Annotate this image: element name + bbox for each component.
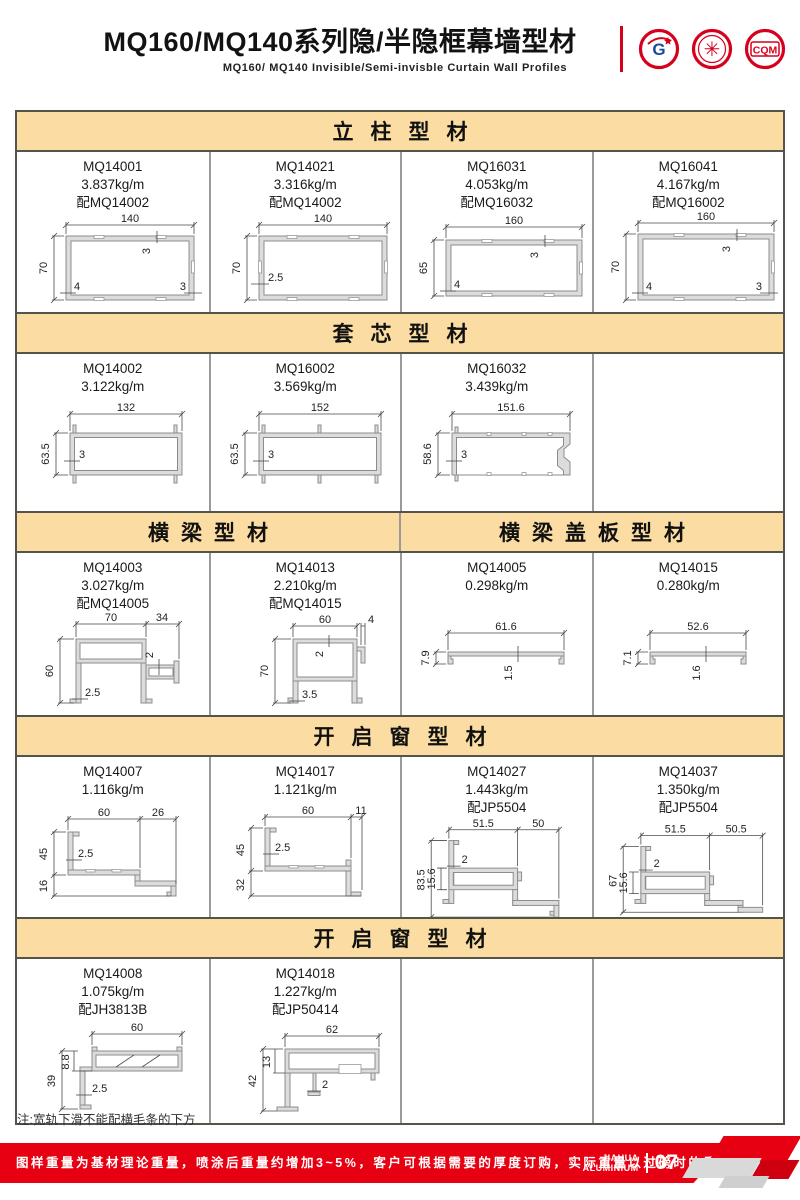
dim-label: 39: [46, 1075, 58, 1087]
profile-match: 配MQ14005: [17, 595, 209, 613]
svg-text:G: G: [652, 40, 665, 59]
dim-label: 63.5: [229, 443, 241, 464]
profile-weight: 3.027kg/m: [17, 577, 209, 595]
footer-brand: JIAHUA ALUMINIUM 07: [583, 1143, 678, 1183]
brand-line-2: ALUMINIUM: [583, 1163, 639, 1173]
dim-label: 50.5: [725, 824, 746, 836]
dim-label: 132: [117, 402, 135, 414]
dim-label: 60: [301, 805, 313, 817]
profile-cell-mq14005: MQ14005 0.298kg/m 61.6 7.9 1.5: [400, 553, 592, 715]
certification-logos: G ✳ CQM: [620, 26, 786, 72]
profile-label: MQ16032 3.439kg/m: [402, 360, 592, 396]
dim-label: 34: [156, 613, 168, 624]
section-band-beam: 横梁型材: [17, 513, 399, 551]
section-title: 套芯型材: [316, 318, 485, 348]
profile-code: MQ14013: [211, 559, 401, 577]
dim-label: 70: [38, 262, 50, 274]
profile-drawing-mq14002: 132 63.5 3: [18, 397, 208, 497]
dim-label: 45: [235, 844, 247, 856]
profile-weight: 1.227kg/m: [211, 983, 401, 1001]
page-title: MQ160/MQ140系列隐/半隐框幕墙型材: [40, 20, 640, 59]
brand-separator: [646, 1153, 648, 1173]
dim-label: 2.5: [92, 1083, 107, 1095]
profile-match: 配MQ16002: [594, 194, 784, 212]
brand-name: JIAHUA ALUMINIUM: [583, 1153, 639, 1174]
profile-match: 配JH3813B: [17, 1001, 209, 1019]
gb-certification-logo-icon: G: [638, 28, 680, 70]
empty-cell: [400, 959, 592, 1123]
profile-code: MQ16031: [402, 158, 592, 176]
dim-label: 15.6: [426, 869, 438, 890]
dim-label: 2: [322, 1079, 328, 1091]
profile-weight: 4.167kg/m: [594, 176, 784, 194]
dim-label: 7.9: [420, 650, 432, 665]
profile-cell-mq14003: MQ14003 3.027kg/m 配MQ14005 70 34 60: [17, 553, 209, 715]
quality-emblem-logo-icon: ✳: [691, 28, 733, 70]
dim-label: 15.6: [618, 873, 630, 894]
dim-label: 63.5: [40, 443, 52, 464]
profile-cell-mq14018: MQ14018 1.227kg/m 配JP50414 62 42 13: [209, 959, 401, 1123]
page-header: MQ160/MQ140系列隐/半隐框幕墙型材 MQ160/ MQ140 Invi…: [40, 20, 640, 74]
profile-code: MQ14027: [402, 763, 592, 781]
profile-drawing-mq14003: 70 34 60 2.5 2: [18, 613, 208, 711]
profile-label: MQ14015 0.280kg/m: [594, 559, 784, 595]
dim-label: 51.5: [473, 818, 494, 830]
dim-label: 51.5: [664, 824, 685, 836]
profile-match: 配JP5504: [402, 799, 592, 817]
profile-drawing-mq14037: 51.5 50.5 67 15.6 2: [594, 817, 784, 917]
logo-divider: [620, 26, 623, 72]
svg-text:✳: ✳: [704, 37, 721, 61]
section-band-columns: 立柱型材: [17, 112, 783, 152]
dim-label: 3: [268, 449, 274, 461]
profile-label: MQ14021 3.316kg/m 配MQ14002: [211, 158, 401, 211]
dim-label: 2: [462, 855, 468, 867]
profile-drawing-mq14015: 52.6 7.1 1.6: [594, 596, 784, 694]
dim-label: 70: [610, 261, 622, 273]
profile-cell-mq14037: MQ14037 1.350kg/m 配JP5504 51.5 5: [592, 757, 784, 917]
dim-label: 52.6: [687, 621, 708, 633]
profile-match: 配MQ14002: [211, 194, 401, 212]
dim-label: 7.1: [622, 650, 634, 665]
profile-drawing-mq14005: 61.6 7.9 1.5: [402, 596, 592, 694]
profile-catalog-table: 立柱型材 MQ14001 3.837kg/m 配MQ14002 140 70: [15, 110, 785, 1125]
dim-label: 2.5: [85, 687, 100, 699]
footer-bar: 图样重量为基材理论重量，喷涂后重量约增加3~5%，客户可根据需要的厚度订购，实际…: [0, 1143, 730, 1183]
profile-drawing-mq16002: 152 63.5 3: [211, 397, 401, 497]
dim-label: 3: [529, 252, 541, 258]
dim-label: 160: [696, 212, 714, 223]
dim-label: 26: [152, 807, 164, 819]
section-band-vents-2: 开启窗型材: [17, 917, 783, 959]
dim-label: 140: [313, 213, 331, 225]
dim-label: 2.5: [275, 842, 290, 854]
dim-label: 3: [141, 248, 153, 254]
dim-label: 3: [79, 449, 85, 461]
profile-code: MQ14037: [594, 763, 784, 781]
profile-label: MQ14018 1.227kg/m 配JP50414: [211, 965, 401, 1018]
dim-label: 4: [454, 279, 460, 291]
dim-label: 3: [721, 246, 733, 252]
profile-code: MQ14003: [17, 559, 209, 577]
dim-label: 45: [38, 848, 50, 860]
profile-weight: 1.075kg/m: [17, 983, 209, 1001]
profile-weight: 1.350kg/m: [594, 781, 784, 799]
svg-text:CQM: CQM: [753, 45, 778, 57]
profile-match: 配JP50414: [211, 1001, 401, 1019]
section-title: 立柱型材: [316, 116, 485, 146]
section-title: 横梁型材: [136, 517, 280, 547]
profile-code: MQ14008: [17, 965, 209, 983]
profile-code: MQ16002: [211, 360, 401, 378]
section-row: MQ14001 3.837kg/m 配MQ14002 140 70 3: [17, 152, 783, 312]
dim-label: 58.6: [422, 443, 434, 464]
dim-label: 151.6: [497, 402, 525, 414]
profile-label: MQ14037 1.350kg/m 配JP5504: [594, 763, 784, 816]
decor-parallelogram-gray-small: [719, 1176, 770, 1188]
profile-weight: 3.439kg/m: [402, 378, 592, 396]
profile-weight: 3.569kg/m: [211, 378, 401, 396]
profile-cell-mq14013: MQ14013 2.210kg/m 配MQ14015 60 4 70: [209, 553, 401, 715]
profile-label: MQ14001 3.837kg/m 配MQ14002: [17, 158, 209, 211]
profile-weight: 1.443kg/m: [402, 781, 592, 799]
section-band-beam-cover: 横梁盖板型材: [399, 513, 783, 551]
profile-cell-mq14027: MQ14027 1.443kg/m 配JP5504 51.5 50: [400, 757, 592, 917]
profile-cell-mq16032: MQ16032 3.439kg/m 151.6 58.6 3: [400, 354, 592, 511]
cqm-certification-logo-icon: CQM: [744, 28, 786, 70]
profile-label: MQ14002 3.122kg/m: [17, 360, 209, 396]
section-title: 开启窗型材: [297, 721, 504, 751]
page-number: 07: [655, 1151, 678, 1175]
section-band-cores: 套芯型材: [17, 312, 783, 354]
profile-cell-mq14002: MQ14002 3.122kg/m 132 63.5 3: [17, 354, 209, 511]
profile-match: 配MQ16032: [402, 194, 592, 212]
dim-label: 2: [144, 652, 156, 658]
profile-cell-mq14007: MQ14007 1.116kg/m 60 26 45: [17, 757, 209, 917]
profile-weight: 4.053kg/m: [402, 176, 592, 194]
empty-cell: [592, 354, 784, 511]
profile-drawing-mq14027: 51.5 50 83.5 15.6 2: [402, 817, 592, 917]
profile-drawing-mq14013: 60 4 70 2 3.5: [211, 613, 401, 711]
profile-code: MQ16032: [402, 360, 592, 378]
profile-weight: 3.122kg/m: [17, 378, 209, 396]
dim-label: 3: [461, 449, 467, 461]
section-band-beams: 横梁型材 横梁盖板型材: [17, 511, 783, 553]
profile-code: MQ14007: [17, 763, 209, 781]
dim-label: 1.6: [691, 665, 703, 680]
profile-cell-mq14015: MQ14015 0.280kg/m 52.6 7.1 1.6: [592, 553, 784, 715]
profile-weight: 1.116kg/m: [17, 781, 209, 799]
profile-cell-mq16002: MQ16002 3.569kg/m 152 63.5 3: [209, 354, 401, 511]
profile-match: 配MQ14015: [211, 595, 401, 613]
profile-label: MQ16031 4.053kg/m 配MQ16032: [402, 158, 592, 211]
dim-label: 42: [247, 1075, 259, 1087]
dim-label: 11: [355, 805, 366, 817]
empty-cell: [592, 959, 784, 1123]
dim-label: 3: [180, 281, 186, 293]
profile-code: MQ14017: [211, 763, 401, 781]
dim-label: 70: [231, 262, 243, 274]
profile-drawing-mq14001: 140 70 3 4 3: [18, 212, 208, 310]
brand-line-1: JIAHUA: [583, 1153, 639, 1163]
decor-parallelogram-gray: [682, 1158, 762, 1178]
profile-label: MQ14017 1.121kg/m: [211, 763, 401, 799]
profile-label: MQ14005 0.298kg/m: [402, 559, 592, 595]
dim-label: 60: [318, 614, 330, 626]
profile-cell-mq14008: MQ14008 1.075kg/m 配JH3813B 60 39 8.8: [17, 959, 209, 1123]
dim-label: 70: [259, 665, 271, 677]
catalog-page: MQ160/MQ140系列隐/半隐框幕墙型材 MQ160/ MQ140 Invi…: [0, 0, 800, 1200]
profile-drawing-mq14018: 62 42 13 2: [211, 1019, 401, 1119]
profile-drawing-mq14017: 60 11 45 32 2.5: [211, 800, 401, 912]
dim-label: 61.6: [495, 621, 516, 633]
profile-match: 配JP5504: [594, 799, 784, 817]
profile-cell-mq14001: MQ14001 3.837kg/m 配MQ14002 140 70 3: [17, 152, 209, 312]
dim-label: 60: [44, 665, 56, 677]
footnote: 注:宽轨下滑不能配横毛条的下方: [17, 1109, 195, 1128]
section-row: MQ14008 1.075kg/m 配JH3813B 60 39 8.8: [17, 959, 783, 1123]
dim-label: 4: [646, 281, 652, 293]
dim-label: 60: [131, 1022, 143, 1034]
profile-drawing-mq16041: 160 70 3 4 3: [594, 212, 784, 310]
dim-label: 60: [98, 807, 110, 819]
profile-drawing-mq14008: 60 39 8.8 2.5: [18, 1019, 208, 1119]
profile-label: MQ14027 1.443kg/m 配JP5504: [402, 763, 592, 816]
profile-label: MQ14007 1.116kg/m: [17, 763, 209, 799]
dim-label: 2: [314, 651, 326, 657]
dim-label: 65: [418, 262, 430, 274]
profile-weight: 3.316kg/m: [211, 176, 401, 194]
profile-code: MQ14021: [211, 158, 401, 176]
profile-code: MQ14002: [17, 360, 209, 378]
profile-cell-mq16031: MQ16031 4.053kg/m 配MQ16032 160 65 3: [400, 152, 592, 312]
profile-code: MQ14015: [594, 559, 784, 577]
profile-label: MQ16002 3.569kg/m: [211, 360, 401, 396]
section-band-vents-1: 开启窗型材: [17, 715, 783, 757]
profile-drawing-mq16031: 160 65 3 4: [402, 212, 592, 310]
dim-label: 4: [74, 281, 80, 293]
dim-label: 160: [505, 215, 523, 227]
profile-drawing-mq14007: 60 26 45 16 2.5: [18, 800, 208, 912]
dim-label: 1.5: [503, 665, 515, 680]
profile-weight: 0.298kg/m: [402, 577, 592, 595]
profile-drawing-mq16032: 151.6 58.6 3: [402, 397, 592, 497]
profile-match: 配MQ14002: [17, 194, 209, 212]
profile-label: MQ14008 1.075kg/m 配JH3813B: [17, 965, 209, 1018]
profile-code: MQ14001: [17, 158, 209, 176]
profile-cell-mq16041: MQ16041 4.167kg/m 配MQ16002 160 70 3: [592, 152, 784, 312]
profile-drawing-mq14021: 140 70 2.5: [211, 212, 401, 310]
profile-label: MQ14003 3.027kg/m 配MQ14005: [17, 559, 209, 612]
section-row: MQ14007 1.116kg/m 60 26 45: [17, 757, 783, 917]
profile-code: MQ16041: [594, 158, 784, 176]
section-title: 横梁盖板型材: [487, 517, 697, 547]
dim-label: 16: [38, 880, 50, 892]
section-title: 开启窗型材: [297, 923, 504, 953]
dim-label: 70: [105, 613, 117, 624]
profile-weight: 0.280kg/m: [594, 577, 784, 595]
dim-label: 3: [755, 281, 761, 293]
page-subtitle: MQ160/ MQ140 Invisible/Semi-invisble Cur…: [40, 62, 640, 74]
dim-label: 32: [235, 879, 247, 891]
section-row: MQ14003 3.027kg/m 配MQ14005 70 34 60: [17, 553, 783, 715]
profile-cell-mq14017: MQ14017 1.121kg/m 60 11 45: [209, 757, 401, 917]
profile-weight: 1.121kg/m: [211, 781, 401, 799]
dim-label: 152: [310, 402, 328, 414]
profile-weight: 3.837kg/m: [17, 176, 209, 194]
dim-label: 8.8: [60, 1055, 72, 1070]
dim-label: 50: [532, 818, 544, 830]
profile-code: MQ14005: [402, 559, 592, 577]
dim-label: 4: [367, 614, 373, 626]
profile-cell-mq14021: MQ14021 3.316kg/m 配MQ14002 140 70 2.5: [209, 152, 401, 312]
profile-weight: 2.210kg/m: [211, 577, 401, 595]
dim-label: 62: [325, 1024, 337, 1036]
dim-label: 140: [121, 213, 139, 225]
dim-label: 3.5: [302, 689, 317, 701]
dim-label: 2: [653, 859, 659, 871]
profile-label: MQ16041 4.167kg/m 配MQ16002: [594, 158, 784, 211]
profile-label: MQ14013 2.210kg/m 配MQ14015: [211, 559, 401, 612]
dim-label: 2.5: [78, 848, 93, 860]
dim-label: 13: [261, 1056, 273, 1068]
dim-label: 2.5: [268, 272, 283, 284]
section-row: MQ14002 3.122kg/m 132 63.5 3 MQ16: [17, 354, 783, 511]
profile-code: MQ14018: [211, 965, 401, 983]
